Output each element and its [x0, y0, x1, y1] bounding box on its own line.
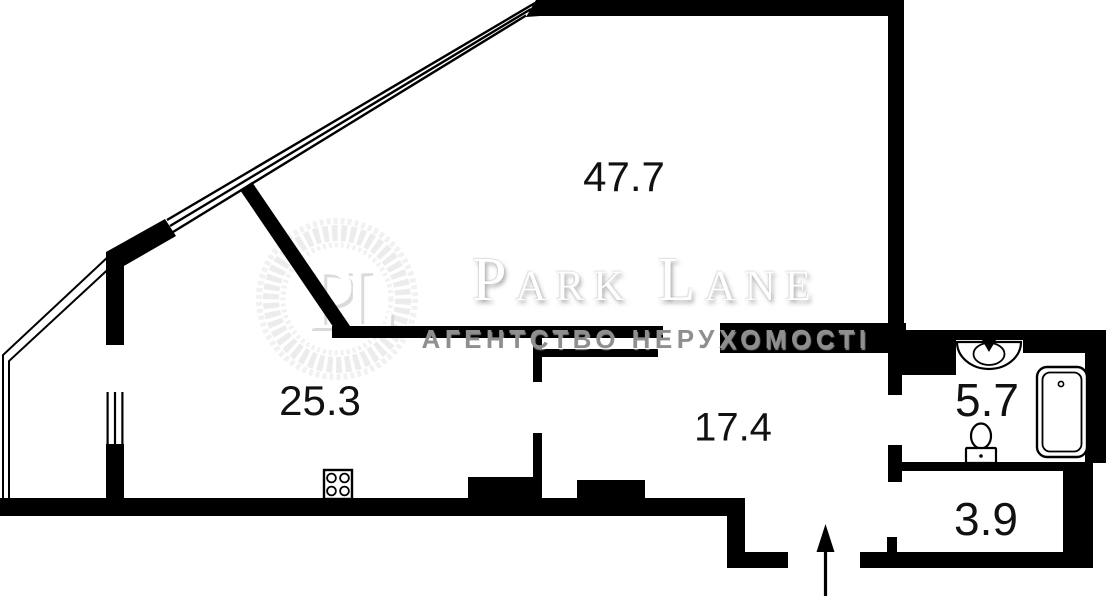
- bath-top-band-left: [883, 330, 956, 353]
- bottom-wall-pier-right: [577, 480, 645, 498]
- watermark-brand: Park Lane: [472, 245, 820, 316]
- room-area-label-living: 47.7: [583, 153, 665, 201]
- room-area-label-hallway: 17.4: [694, 406, 772, 451]
- bath-left-block: [888, 353, 956, 375]
- bath-left-wall-upper: [888, 375, 902, 395]
- bath-top-band-over-sink: [956, 330, 1023, 340]
- watermark-subtitle: АГЕНТСТВО НЕРУХОМОСТІ: [422, 324, 871, 355]
- window-left-icon: [108, 392, 123, 444]
- toilet-icon: [966, 424, 996, 464]
- entry-wall-left: [727, 552, 788, 568]
- top-wall: [526, 0, 904, 17]
- floor-plan: PL PL: [0, 0, 1106, 600]
- room-area-label-storage: 3.9: [954, 492, 1018, 546]
- bottom-wall-main: [0, 498, 743, 516]
- room-area-label-kitchen: 25.3: [279, 377, 361, 425]
- sink-icon: [957, 340, 1021, 369]
- bathtub-icon: [1037, 367, 1087, 457]
- stove-icon: [324, 470, 352, 499]
- left-wall-lower: [106, 444, 124, 500]
- entry-wall-right: [860, 552, 1093, 568]
- hall-left-wall-lower: [533, 433, 542, 498]
- storage-door-stub: [887, 537, 897, 552]
- entrance-arrow-icon: [817, 524, 835, 596]
- left-wall-upper: [106, 252, 124, 345]
- bath-top-band-right: [1023, 330, 1085, 353]
- right-wall: [888, 0, 904, 330]
- balcony-contour: [3, 255, 116, 498]
- bottom-wall-pier-left: [468, 477, 533, 498]
- window-diagonal-icon: [167, 3, 535, 232]
- room-area-label-bathroom: 5.7: [955, 373, 1019, 427]
